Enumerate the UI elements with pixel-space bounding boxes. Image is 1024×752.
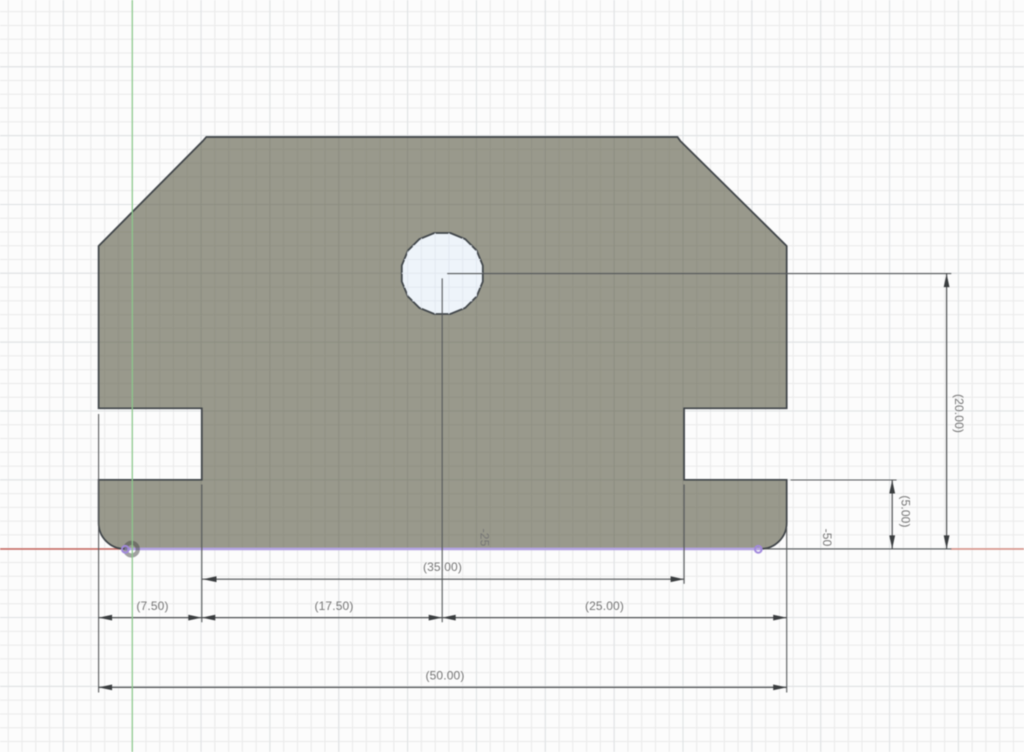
svg-text:-25: -25: [478, 529, 492, 547]
svg-text:-50: -50: [820, 529, 834, 547]
svg-text:(35.00): (35.00): [423, 560, 462, 574]
svg-text:(17.50): (17.50): [314, 599, 353, 613]
svg-text:(50.00): (50.00): [425, 669, 464, 683]
svg-text:(7.50): (7.50): [136, 599, 168, 613]
svg-text:(5.00): (5.00): [898, 495, 912, 527]
svg-text:(20.00): (20.00): [952, 394, 966, 433]
svg-text:(25.00): (25.00): [585, 599, 624, 613]
